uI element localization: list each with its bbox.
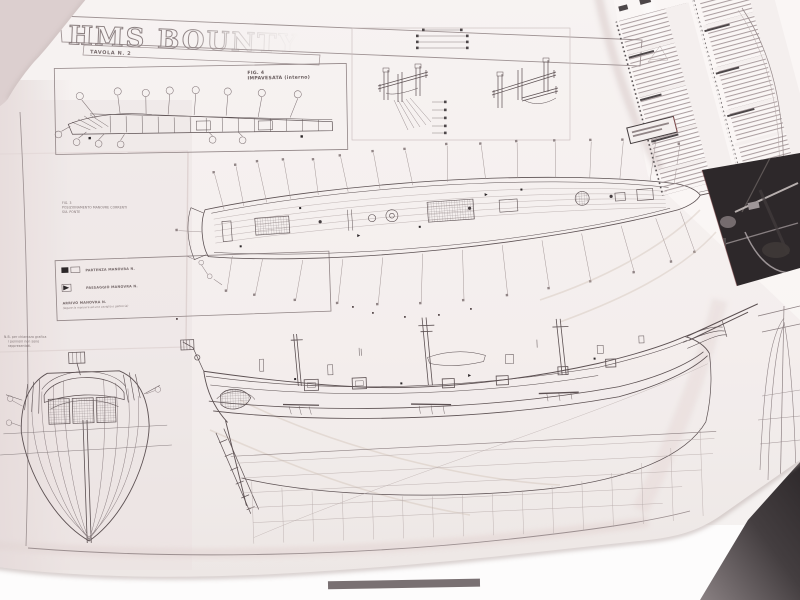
- paper-tone-overlay: [0, 0, 800, 600]
- photo-of-ship-plan-sheet: HMS BOUNTY TAVOLA N. 2 FIG. 4 IMPAVESATA…: [0, 0, 800, 600]
